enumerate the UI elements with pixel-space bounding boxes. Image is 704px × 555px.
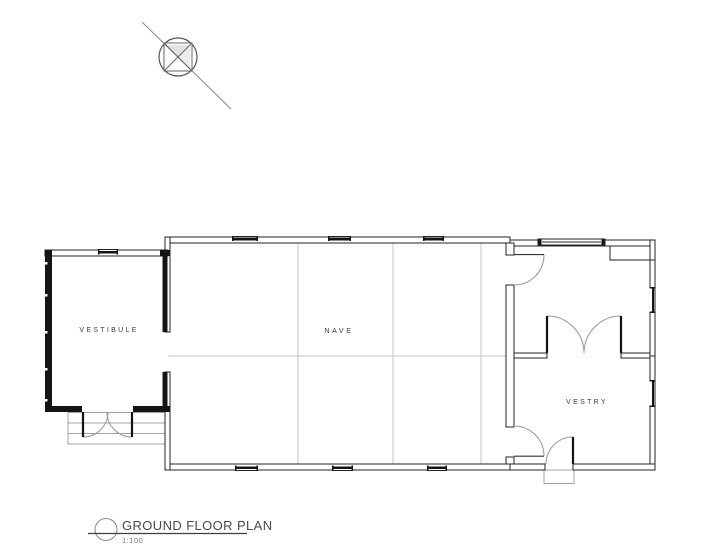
grid-lines — [169, 244, 506, 464]
door-swing — [514, 255, 544, 285]
door-swing — [514, 426, 544, 456]
window — [538, 239, 605, 245]
window — [423, 236, 444, 243]
window — [649, 287, 656, 313]
north-arrow-icon — [142, 22, 231, 109]
entrance-steps — [68, 413, 574, 484]
room-label-vestry: VESTRY — [566, 399, 608, 406]
window — [332, 465, 353, 472]
room-label-vestibule: VESTIBULE — [79, 327, 138, 334]
windows — [98, 236, 656, 472]
floor-plan-sheet: VESTIBULE NAVE VESTRY GROUND FLOOR PLAN … — [0, 0, 704, 555]
drawing-scale: 1:100 — [122, 536, 143, 545]
window — [649, 380, 656, 407]
drawing-title: GROUND FLOOR PLAN — [122, 518, 273, 533]
window — [98, 249, 118, 255]
vestry-step — [544, 470, 574, 484]
door-swing — [546, 437, 573, 464]
window — [232, 236, 258, 243]
vestry-cupboard — [610, 246, 655, 356]
room-label-nave: NAVE — [325, 328, 354, 335]
door-swing — [547, 316, 584, 353]
window — [328, 236, 351, 243]
window — [427, 465, 447, 472]
floor-plan-drawing — [0, 0, 704, 555]
door-swing — [584, 316, 621, 353]
walls — [45, 237, 655, 470]
window — [235, 465, 258, 472]
